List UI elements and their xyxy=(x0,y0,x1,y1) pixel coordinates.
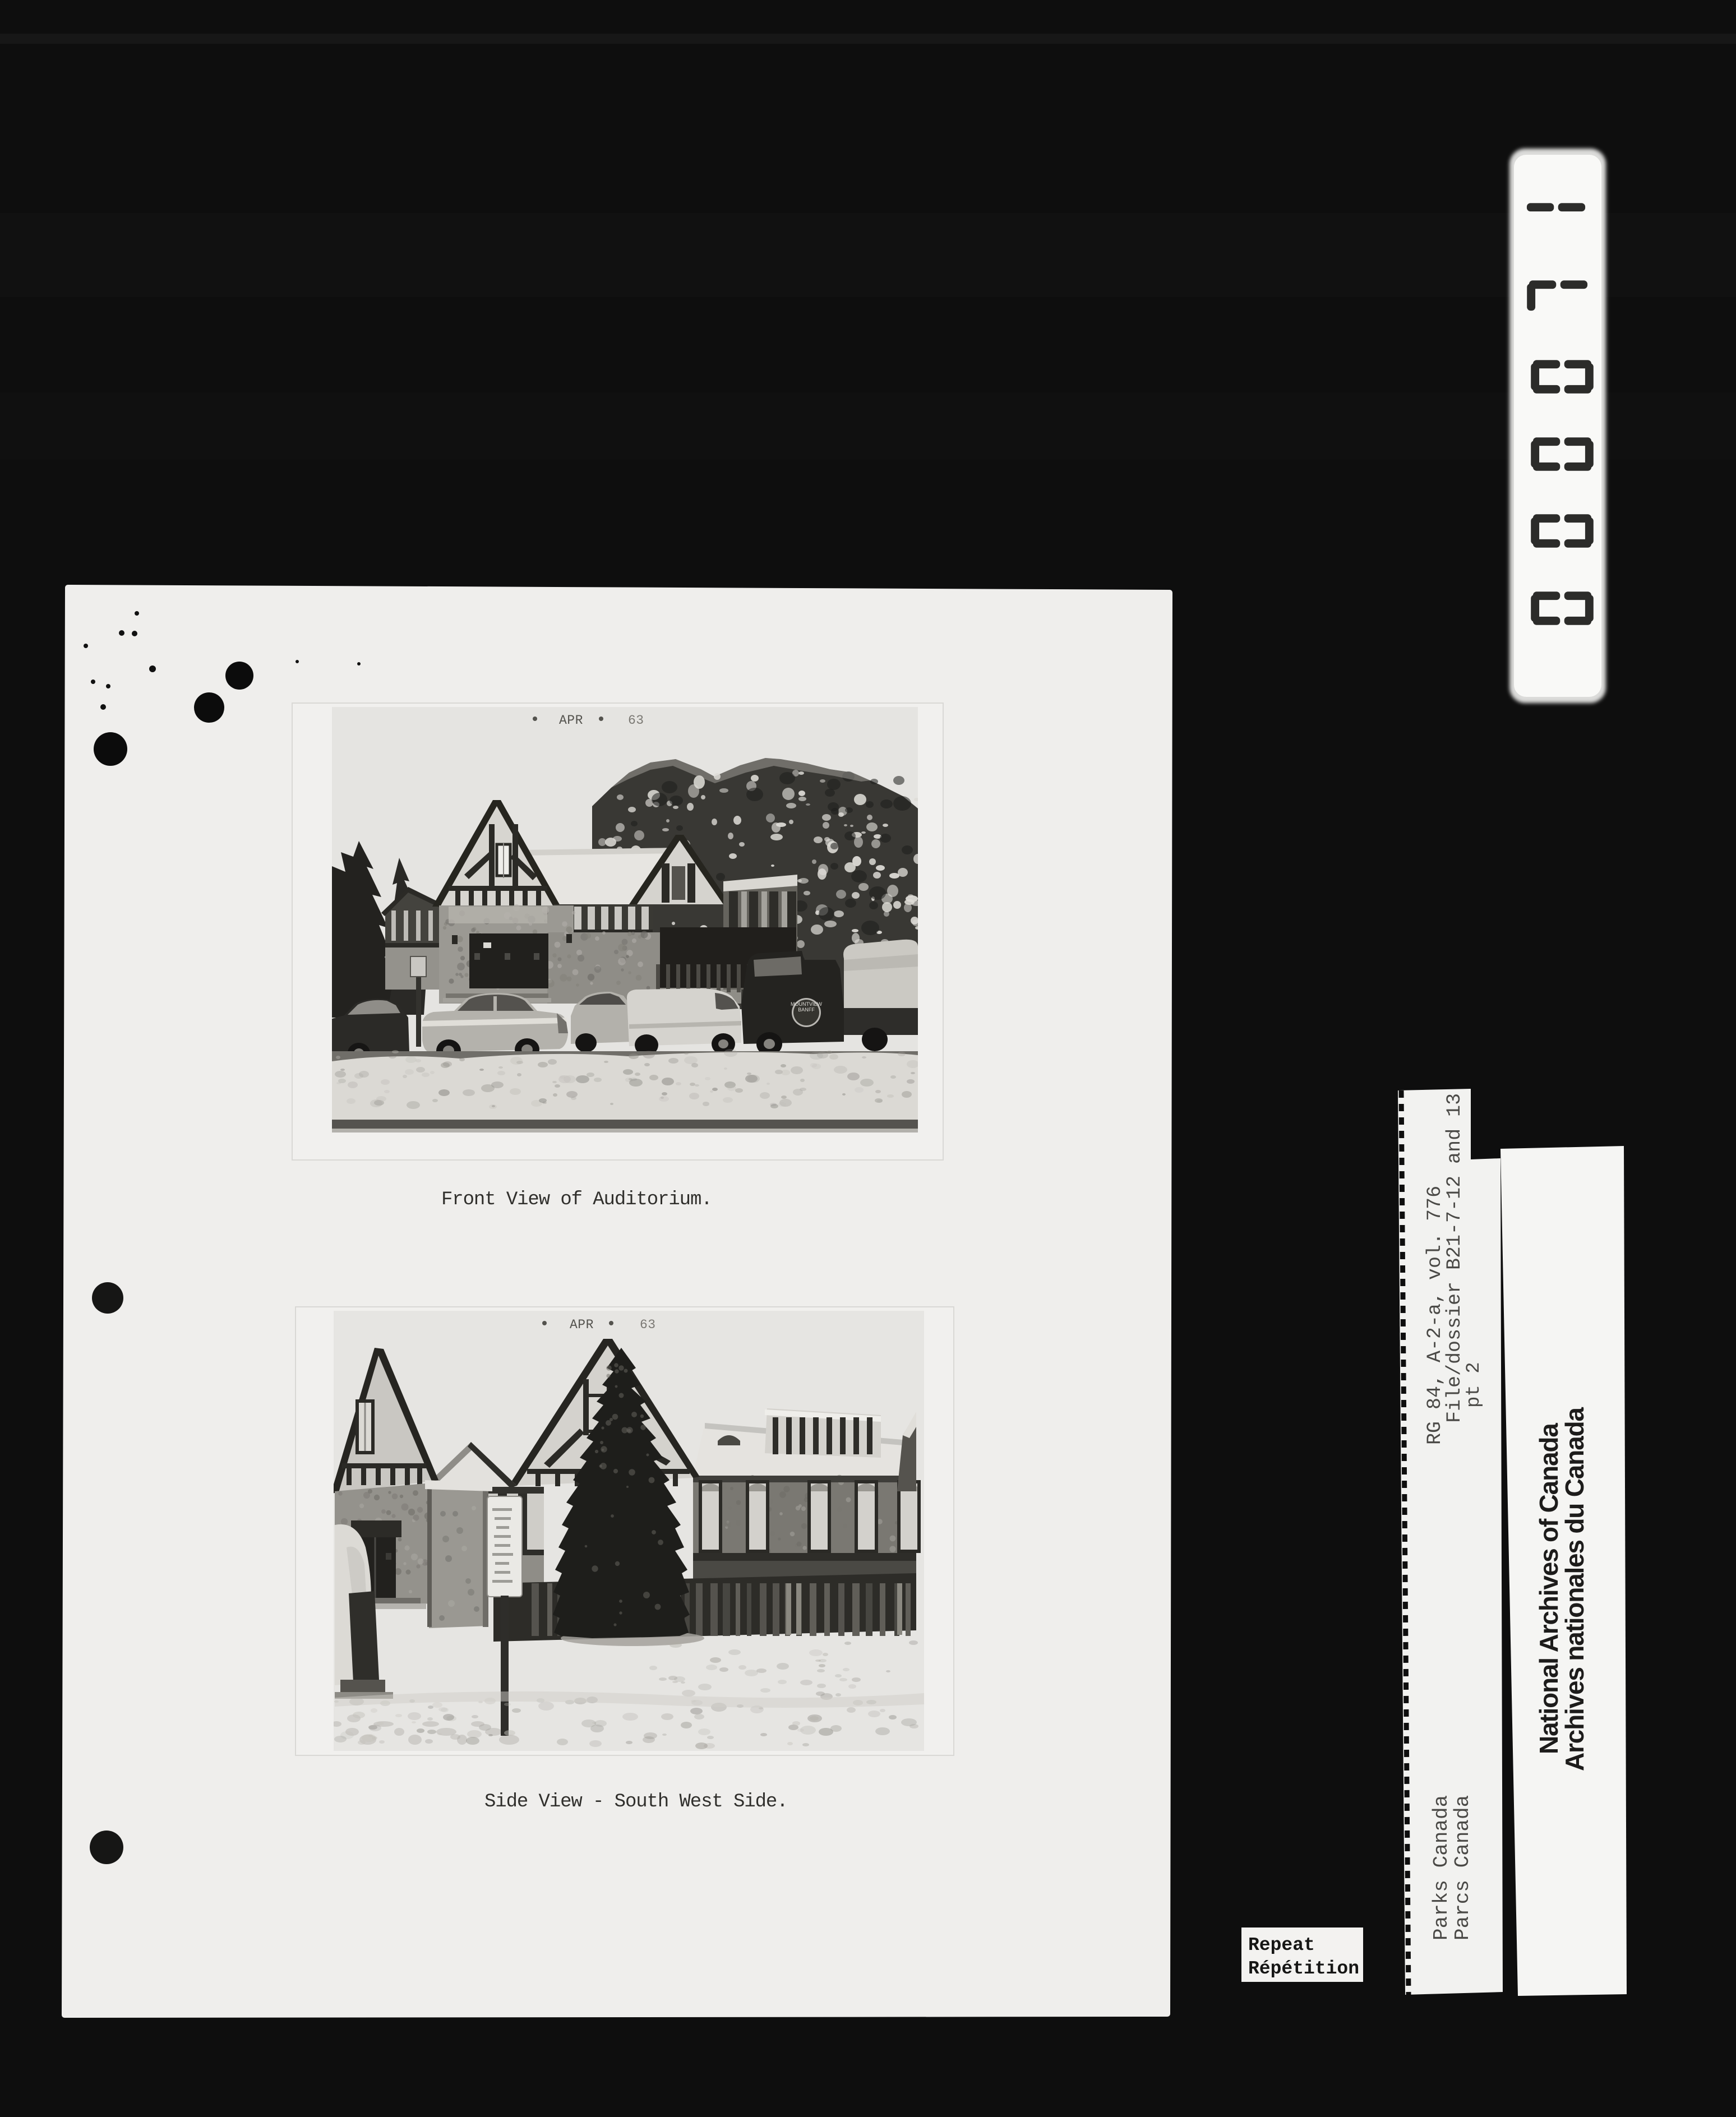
svg-text:Parcs Canada: Parcs Canada xyxy=(1451,1795,1474,1940)
svg-text:Front View of Auditorium.: Front View of Auditorium. xyxy=(441,1189,712,1210)
svg-text:APR: APR xyxy=(570,1318,594,1332)
svg-text:National Archives of Canada: National Archives of Canada xyxy=(1534,1423,1563,1754)
svg-text:pt 2: pt 2 xyxy=(1463,1362,1485,1408)
svg-text:RG 84, A-2-a, vol. 776: RG 84, A-2-a, vol. 776 xyxy=(1424,1186,1446,1445)
svg-text:Archives nationales du Canada: Archives nationales du Canada xyxy=(1560,1407,1589,1771)
svg-text:63: 63 xyxy=(628,713,644,728)
svg-text:Repeat: Repeat xyxy=(1248,1935,1315,1956)
svg-text:BANFF: BANFF xyxy=(798,1007,815,1013)
svg-text:File/dossier B21-7-12 and 13: File/dossier B21-7-12 and 13 xyxy=(1443,1093,1466,1423)
svg-text:63: 63 xyxy=(640,1318,656,1332)
svg-text:Parks Canada: Parks Canada xyxy=(1430,1795,1453,1940)
svg-text:Répétition: Répétition xyxy=(1248,1958,1359,1979)
svg-text:MOUNTVIEW: MOUNTVIEW xyxy=(791,1001,823,1007)
svg-text:APR: APR xyxy=(559,713,583,728)
svg-text:Side View - South West Side.: Side View - South West Side. xyxy=(484,1791,788,1813)
